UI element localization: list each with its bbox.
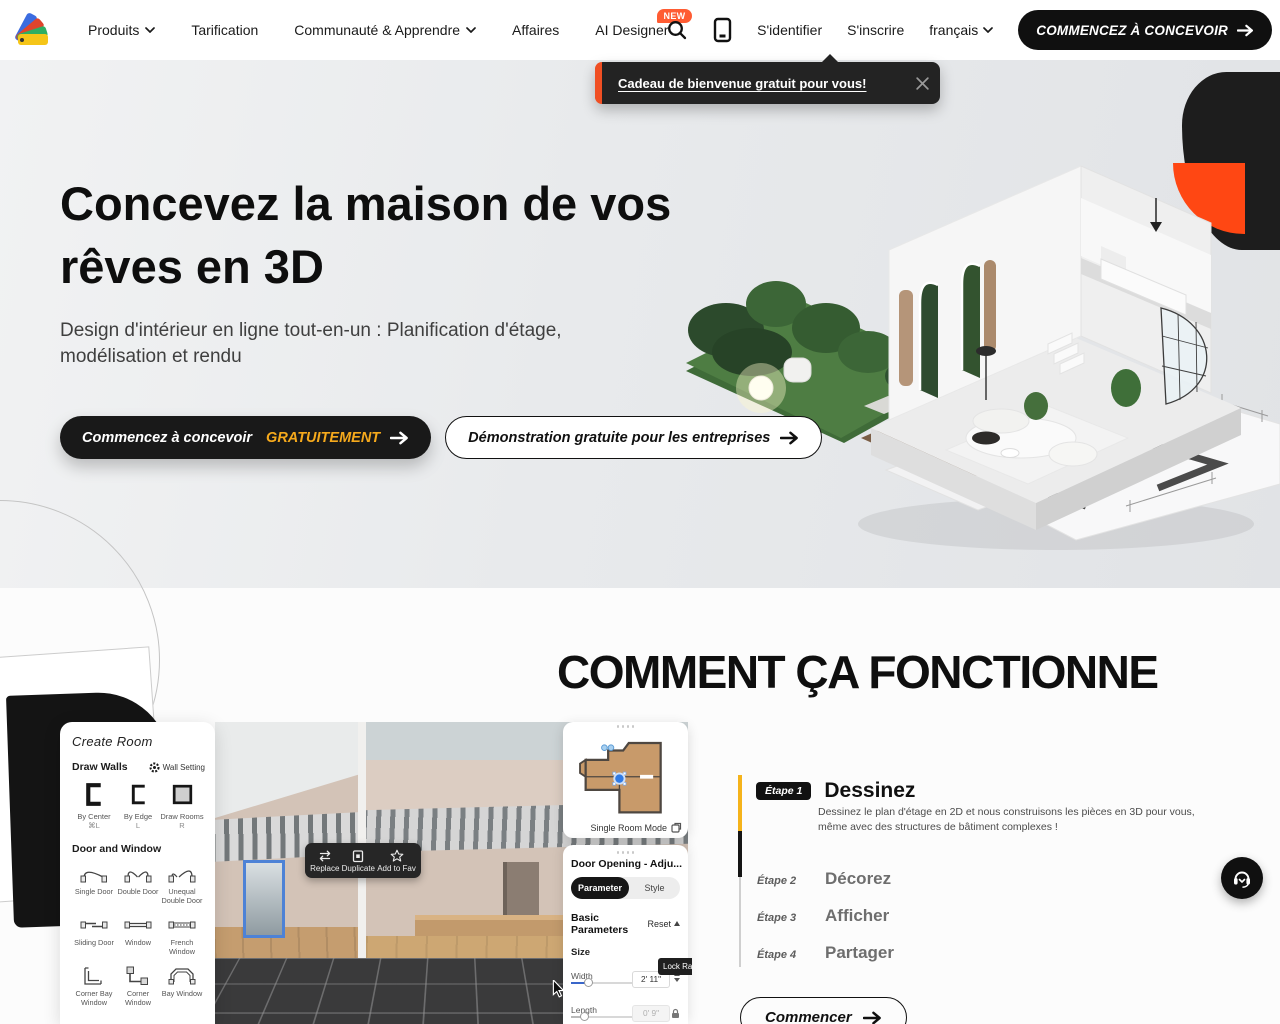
arrow-right-icon bbox=[780, 431, 799, 445]
duplicate-button: Duplicate bbox=[342, 849, 375, 873]
item-window: Window bbox=[116, 914, 160, 956]
step-3-header[interactable]: Étape 3 Afficher bbox=[757, 906, 889, 926]
length-value: 0' 9" bbox=[632, 1005, 670, 1022]
window-icon bbox=[123, 914, 153, 936]
minimap-card: Single Room Mode bbox=[563, 722, 688, 838]
wall-setting-button: Wall Setting bbox=[149, 762, 205, 773]
length-row: Length 0' 9" bbox=[571, 1000, 680, 1024]
item-corner-window: Corner Window bbox=[116, 965, 160, 1007]
search-icon[interactable] bbox=[666, 19, 688, 41]
tab-style: Style bbox=[629, 883, 680, 893]
header-right: S'identifier S'inscrire français COMMENC… bbox=[666, 0, 1272, 60]
free-demo-button[interactable]: Démonstration gratuite pour les entrepri… bbox=[445, 416, 822, 459]
drag-handle bbox=[571, 848, 680, 854]
welcome-gift-notification: Cadeau de bienvenue gratuit pour vous! bbox=[595, 62, 940, 104]
arrow-right-icon bbox=[863, 1011, 882, 1024]
double-door-icon bbox=[123, 863, 153, 885]
drag-handle bbox=[563, 722, 688, 728]
support-chat-button[interactable] bbox=[1221, 857, 1263, 899]
tool-by-edge: By Edge L bbox=[116, 781, 160, 830]
page: Produits Tarification Communauté & Appre… bbox=[0, 0, 1280, 1024]
expand-mode-icon bbox=[671, 822, 682, 833]
nav-produits[interactable]: Produits bbox=[88, 22, 155, 38]
mobile-app-icon[interactable] bbox=[713, 17, 732, 43]
start-designing-label: COMMENCEZ À CONCEVOIR bbox=[1036, 23, 1228, 38]
nav-communaute[interactable]: Communauté & Apprendre bbox=[294, 22, 476, 38]
item-french-window: French Window bbox=[160, 914, 204, 956]
width-slider bbox=[571, 982, 633, 984]
ceiling-left bbox=[215, 722, 358, 818]
app-screenshot: Replace Duplicate Add to Fav Create Room… bbox=[60, 722, 688, 1024]
create-room-title: Create Room bbox=[72, 734, 205, 749]
tool-draw-rooms: Draw Rooms R bbox=[160, 781, 204, 830]
step-progress-yellow bbox=[738, 775, 742, 831]
door-window-heading: Door and Window bbox=[72, 843, 205, 855]
draw-rooms-icon bbox=[169, 781, 196, 808]
chevron-down-icon bbox=[466, 27, 476, 33]
step-progress-track bbox=[739, 877, 741, 967]
nav-tarification[interactable]: Tarification bbox=[191, 22, 258, 38]
draw-walls-heading: Draw Walls bbox=[72, 761, 128, 773]
step-progress-black bbox=[738, 831, 742, 877]
chevron-down-icon bbox=[983, 27, 993, 33]
bay-window-icon bbox=[167, 965, 197, 987]
wall-setting-label: Wall Setting bbox=[163, 763, 205, 772]
add-to-fav-label: Add to Fav bbox=[377, 864, 416, 873]
nav-produits-label: Produits bbox=[88, 22, 139, 38]
basic-parameters-heading: Basic Parameters bbox=[571, 912, 647, 936]
language-label: français bbox=[929, 22, 978, 38]
tool-by-center: By Center ⌘L bbox=[72, 781, 116, 830]
french-window-icon bbox=[167, 914, 197, 936]
start-free-highlight: GRATUITEMENT bbox=[266, 430, 380, 446]
free-demo-label: Démonstration gratuite pour les entrepri… bbox=[468, 430, 770, 446]
replace-label: Replace bbox=[310, 864, 339, 873]
coohom-logo[interactable] bbox=[12, 9, 52, 51]
item-unequal-double-door: Unequal Double Door bbox=[160, 863, 204, 905]
door-parameter-panel: Door Opening - Adju... Parameter Style B… bbox=[563, 845, 688, 1024]
item-corner-bay-window: Corner Bay Window bbox=[72, 965, 116, 1007]
item-sliding-door: Sliding Door bbox=[72, 914, 116, 956]
commencer-button[interactable]: Commencer bbox=[740, 997, 907, 1024]
how-it-works-title: COMMENT ÇA FONCTIONNE bbox=[557, 645, 1158, 699]
single-room-mode-label: Single Room Mode bbox=[590, 823, 667, 833]
corner-window-icon bbox=[123, 965, 153, 987]
hero-buttons: Commencez à concevoir GRATUITEMENT Démon… bbox=[60, 416, 822, 459]
create-room-panel: Create Room Draw Walls Wall Setting By C… bbox=[60, 722, 215, 1024]
step-1-description: Dessinez le plan d'étage en 2D et nous c… bbox=[818, 805, 1220, 835]
door-panel-title: Door Opening - Adju... bbox=[571, 858, 682, 870]
wall-tools: By Center ⌘L By Edge L Draw Rooms R bbox=[72, 781, 205, 830]
welcome-gift-link[interactable]: Cadeau de bienvenue gratuit pour vous! bbox=[618, 76, 866, 91]
nav-ai-designer-label: AI Designer bbox=[595, 22, 668, 38]
mouse-cursor bbox=[552, 980, 566, 998]
single-door-icon bbox=[79, 863, 109, 885]
unequal-double-door-icon bbox=[167, 863, 197, 885]
duplicate-label: Duplicate bbox=[342, 864, 375, 873]
header: Produits Tarification Communauté & Appre… bbox=[0, 0, 1280, 60]
duplicate-icon bbox=[351, 849, 365, 863]
nav-affaires[interactable]: Affaires bbox=[512, 22, 559, 38]
size-heading: Size bbox=[571, 947, 680, 958]
nav-communaute-label: Communauté & Apprendre bbox=[294, 22, 460, 38]
start-free-label: Commencez à concevoir bbox=[82, 430, 252, 446]
gear-icon bbox=[149, 762, 160, 773]
item-bay-window: Bay Window bbox=[160, 965, 204, 1007]
star-icon bbox=[390, 849, 404, 863]
hero-title: Concevez la maison de vos rêves en 3D bbox=[60, 172, 750, 298]
arrow-right-icon bbox=[1237, 24, 1254, 37]
signin-link[interactable]: S'identifier bbox=[757, 22, 822, 38]
door-window-grid: Single Door Double Door Unequal Double D… bbox=[72, 863, 205, 1008]
selected-door-opening bbox=[243, 860, 285, 938]
headset-icon bbox=[1230, 866, 1254, 890]
item-single-door: Single Door bbox=[72, 863, 116, 905]
step-4-header[interactable]: Étape 4 Partager bbox=[757, 943, 894, 963]
replace-button: Replace bbox=[310, 849, 339, 873]
nav-tarification-label: Tarification bbox=[191, 22, 258, 38]
object-toolbar: Replace Duplicate Add to Fav bbox=[305, 843, 421, 878]
step-1-badge: Étape 1 bbox=[756, 782, 811, 800]
tab-parameter: Parameter bbox=[571, 877, 629, 899]
lock-icon bbox=[671, 1008, 680, 1019]
step-2-header[interactable]: Étape 2 Décorez bbox=[757, 869, 891, 889]
signup-link[interactable]: S'inscrire bbox=[847, 22, 904, 38]
by-center-icon bbox=[81, 781, 108, 808]
length-slider bbox=[571, 1016, 633, 1018]
item-double-door: Double Door bbox=[116, 863, 160, 905]
language-selector[interactable]: français bbox=[929, 22, 993, 38]
chevron-down-icon bbox=[145, 27, 155, 33]
hero-subtitle: Design d'intérieur en ligne tout-en-un :… bbox=[60, 318, 608, 370]
add-to-fav-button: Add to Fav bbox=[377, 849, 416, 873]
collapse-icon bbox=[674, 921, 680, 926]
step-1-title: Dessinez bbox=[824, 779, 915, 803]
close-icon[interactable] bbox=[915, 76, 930, 91]
nav-ai-designer[interactable]: AI Designer NEW bbox=[595, 22, 668, 38]
reset-button: Reset bbox=[647, 919, 680, 929]
corner-bay-window-icon bbox=[79, 965, 109, 987]
door-panel-tabs: Parameter Style bbox=[571, 877, 680, 899]
arrow-right-icon bbox=[390, 431, 409, 445]
camera-marker bbox=[613, 772, 626, 785]
nav-affaires-label: Affaires bbox=[512, 22, 559, 38]
by-edge-icon bbox=[125, 781, 152, 808]
lock-ratio-tooltip: Lock Rat bbox=[658, 958, 692, 975]
header-left: Produits Tarification Communauté & Appre… bbox=[12, 0, 668, 60]
start-designing-button[interactable]: COMMENCEZ À CONCEVOIR bbox=[1018, 10, 1272, 50]
sliding-door-icon bbox=[79, 914, 109, 936]
step-1-header[interactable]: Étape 1 Dessinez bbox=[756, 779, 915, 803]
start-free-button[interactable]: Commencez à concevoir GRATUITEMENT bbox=[60, 416, 431, 459]
commencer-label: Commencer bbox=[765, 1009, 852, 1024]
replace-icon bbox=[318, 849, 332, 863]
floor-plan bbox=[563, 728, 688, 818]
